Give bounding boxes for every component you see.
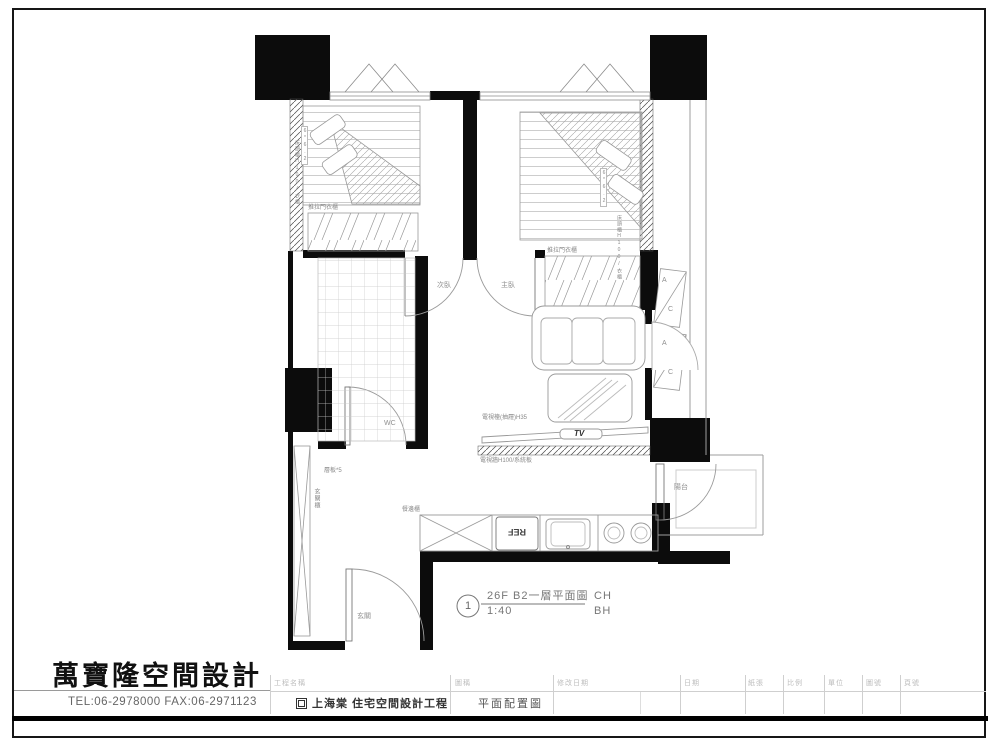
company-contact: TEL:06-2978000 FAX:06-2971123 (68, 696, 257, 708)
master-bedroom-door-label: 主臥 (501, 282, 515, 289)
kitchen (420, 515, 658, 551)
drawing-bh: BH (594, 606, 611, 617)
tb-rule (745, 675, 746, 714)
windows (330, 64, 650, 100)
tb-rule (862, 675, 863, 714)
wc-label: WC (384, 420, 396, 427)
ac1-a-label: A (662, 277, 667, 284)
shanghai-tang-logo-icon (296, 698, 307, 709)
drawing-scale: 1:40 (487, 606, 512, 617)
tb-project-label: 工程名稱 (274, 678, 306, 688)
title-block-bottom-bar (12, 716, 988, 721)
floor-plan-sheet: 推拉門衣櫃 推拉門衣櫃 次臥 主臥 WC 玄關 陽台 層板*5 玄關櫃 餐邊櫃 … (0, 0, 1000, 750)
ac2-c-label: C (668, 369, 673, 376)
tb-rule (450, 675, 451, 714)
tb-col-label: 日期 (684, 678, 700, 688)
entry-label: 玄關 (357, 613, 371, 620)
tb-rule (680, 675, 681, 714)
tv-label: TV (574, 430, 584, 438)
wardrobe-2 (545, 256, 640, 308)
tb-rule (824, 675, 825, 714)
tv-wall-note: 電視牆H100/系統板 (480, 458, 532, 464)
fridge-label: REF (498, 527, 536, 536)
tb-col-label: 比例 (787, 678, 803, 688)
tb-rule (900, 675, 901, 714)
wardrobe2-label: 推拉門衣櫃 (547, 248, 577, 254)
tb-col-label: 頁號 (904, 678, 920, 688)
floor-plan-drawing (0, 0, 1000, 660)
company-divider (14, 690, 270, 691)
bed-2 (520, 112, 645, 240)
tb-drawing-value: 平面配置圖 (478, 695, 543, 711)
tb-col-label: 單位 (828, 678, 844, 688)
tb-rule (270, 691, 986, 692)
tb-rule (783, 675, 784, 714)
tb-rule (553, 675, 554, 714)
wardrobe1-label: 推拉門衣櫃 (308, 205, 338, 211)
bed-1 (303, 106, 420, 205)
tb-project-value: 上海棠 住宅空間設計工程 (296, 695, 448, 711)
tb-col-label: 修改日期 (557, 678, 589, 688)
sideboard-label: 餐邊櫃 (402, 507, 420, 513)
balcony-label: 陽台 (674, 484, 688, 491)
company-name: 萬寶隆空間設計 (52, 654, 262, 693)
tb-project-text: 上海棠 住宅空間設計工程 (312, 695, 448, 711)
wc-tile-floor (318, 258, 415, 441)
entry-cabinet (294, 446, 310, 636)
shelf-note-label: 層板*5 (324, 468, 342, 474)
bed2-dimension: 6*6.2 (600, 168, 607, 207)
tb-rule (270, 675, 271, 714)
drawing-title: 26F B2一層平面圖 (487, 591, 588, 602)
ac2-a-label: A (662, 340, 667, 347)
entry-cabinet-label: 玄關櫃 (313, 488, 319, 509)
drawing-number: 1 (457, 601, 479, 612)
tb-col-label: 紙張 (748, 678, 764, 688)
tb-rule (640, 691, 641, 714)
living-furniture (482, 306, 648, 443)
tb-col-label: 圖號 (866, 678, 882, 688)
bed1-dimension: 6*6.2 (301, 126, 308, 165)
drawing-ch: CH (594, 591, 612, 602)
wardrobe-1 (308, 213, 418, 251)
bed1-headboard-note: 床頭櫃H100/衣櫃 (294, 140, 299, 205)
bed2-headboard-note: 床頭櫃H100/衣櫃 (616, 215, 621, 280)
tv-cabinet-note: 電視檯(抽屜)H35 (482, 415, 527, 421)
ac1-c-label: C (668, 306, 673, 313)
tb-drawing-label: 圖稱 (455, 678, 471, 688)
second-bedroom-door-label: 次臥 (437, 282, 451, 289)
